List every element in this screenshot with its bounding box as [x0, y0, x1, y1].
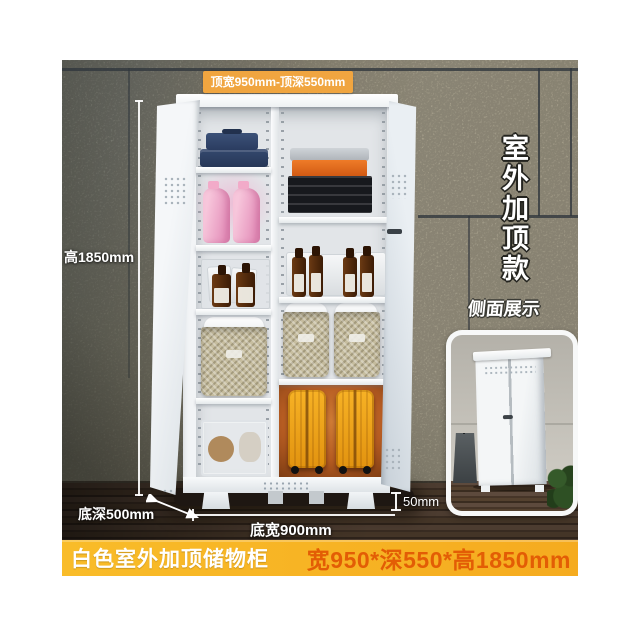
- outdoor-sink: [453, 433, 477, 483]
- height-dimension-line: [138, 100, 140, 496]
- brown-bottle: [236, 272, 255, 307]
- brown-bottle: [309, 255, 323, 297]
- woven-basket: [334, 312, 380, 377]
- width-dimension-line: [192, 514, 395, 516]
- cabinet-leg: [268, 491, 283, 504]
- pink-detergent-bottle: [233, 188, 260, 243]
- orange-toolbox: [292, 160, 367, 177]
- side-view-inset: [446, 330, 578, 516]
- side-view-label: 侧面展示: [467, 295, 542, 321]
- vent-holes: [390, 173, 408, 199]
- cabinet-leg: [347, 492, 375, 509]
- door-handle: [503, 415, 513, 419]
- plant: [547, 461, 573, 511]
- yellow-suitcase: [288, 390, 326, 468]
- shelf: [196, 309, 271, 315]
- vent-holes: [484, 364, 536, 375]
- leg-height-label: 50mm: [403, 494, 439, 509]
- product-name: 白色室外加顶储物柜: [71, 543, 269, 573]
- side-view-scene: [451, 335, 573, 511]
- shelf: [196, 245, 271, 251]
- door-handle: [387, 229, 402, 234]
- shelf: [196, 167, 271, 173]
- vent-holes: [262, 481, 310, 490]
- woven-basket: [283, 312, 329, 377]
- shelf: [279, 297, 387, 303]
- main-photo: 顶宽950mm-顶深550mm 高1850mm 底深500mm 底宽900mm …: [62, 60, 578, 540]
- shelf: [279, 217, 387, 223]
- cabinet-side-view: [475, 356, 546, 486]
- base-width-label: 底宽900mm: [250, 519, 332, 540]
- black-crate: [288, 176, 372, 213]
- navy-toolbox: [206, 133, 258, 150]
- base-depth-label: 底深500mm: [78, 504, 154, 524]
- product-banner: 白色室外加顶储物柜 宽950*深550*高1850mm: [62, 540, 578, 576]
- brown-bottle: [212, 274, 231, 307]
- wire-basket: [201, 420, 268, 476]
- vent-holes: [163, 176, 186, 206]
- brown-bottle: [343, 257, 357, 297]
- shelf: [196, 398, 271, 404]
- leg-height-tick: [395, 492, 397, 511]
- top-dimension-label: 顶宽950mm-顶深550mm: [203, 71, 353, 93]
- cabinet-leg: [535, 485, 544, 492]
- cabinet-top-panel: [176, 94, 398, 107]
- corner-tag-vertical: 室外加顶款: [494, 134, 533, 284]
- product-detail-image: 顶宽950mm-顶深550mm 高1850mm 底深500mm 底宽900mm …: [0, 0, 640, 640]
- brown-bottle: [360, 255, 374, 297]
- vent-holes: [384, 447, 400, 471]
- navy-toolbox: [200, 149, 268, 167]
- cabinet-leg: [309, 491, 324, 504]
- cabinet-leg: [481, 485, 490, 492]
- product-size-text: 宽950*深550*高1850mm: [307, 541, 571, 575]
- height-dimension-label: 高1850mm: [64, 247, 134, 267]
- pink-detergent-bottle: [203, 188, 230, 243]
- shelf: [279, 379, 387, 385]
- woven-basket: [201, 327, 267, 396]
- yellow-suitcase: [336, 390, 374, 468]
- center-divider: [271, 107, 279, 477]
- brown-bottle: [292, 257, 306, 297]
- cabinet-leg: [202, 492, 230, 509]
